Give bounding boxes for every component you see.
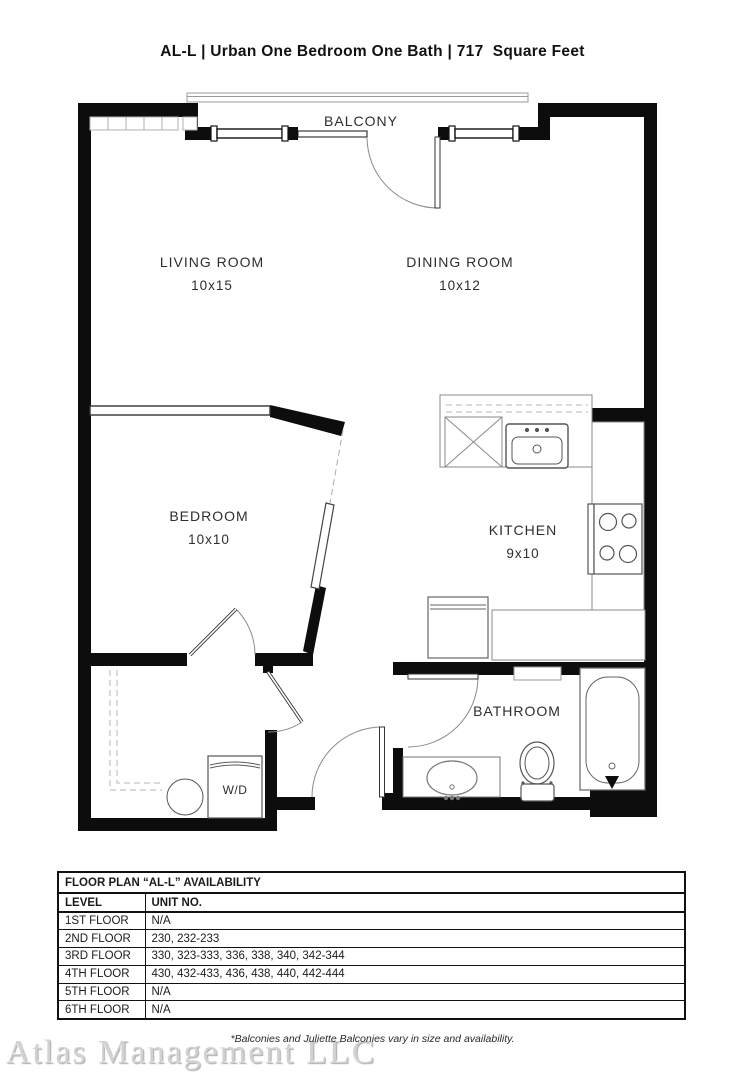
bedroom-door bbox=[190, 609, 255, 655]
room-label-bathroom: BATHROOM bbox=[473, 703, 561, 719]
level-cell: 1ST FLOOR bbox=[58, 912, 145, 930]
room-label-laundry: W/D bbox=[223, 783, 248, 797]
level-cell: 6TH FLOOR bbox=[58, 1001, 145, 1019]
room-dims-bedroom: 10x10 bbox=[188, 532, 230, 547]
sliding-door-panel bbox=[311, 503, 334, 589]
table-row: 3RD FLOOR 330, 323-333, 336, 338, 340, 3… bbox=[58, 948, 685, 966]
room-label-balcony: BALCONY bbox=[324, 113, 398, 129]
table-row: 4TH FLOOR 430, 432-433, 436, 438, 440, 4… bbox=[58, 965, 685, 983]
toilet bbox=[520, 742, 554, 801]
closet-door bbox=[268, 672, 302, 732]
kitchen-counter-bottom bbox=[492, 610, 645, 660]
closet-rod bbox=[110, 670, 162, 790]
units-cell: N/A bbox=[145, 1001, 685, 1019]
entry-door bbox=[312, 727, 385, 797]
room-label-kitchen: KITCHEN bbox=[489, 522, 557, 538]
vanity-sink bbox=[403, 757, 500, 800]
bedroom-partition bbox=[90, 406, 343, 589]
bathroom-fixtures bbox=[403, 667, 645, 801]
units-cell: N/A bbox=[145, 912, 685, 930]
units-cell: N/A bbox=[145, 983, 685, 1001]
units-cell: 230, 232-233 bbox=[145, 930, 685, 948]
baseboard-heater bbox=[90, 117, 197, 130]
level-cell: 5TH FLOOR bbox=[58, 983, 145, 1001]
level-cell: 3RD FLOOR bbox=[58, 948, 145, 966]
room-dims-kitchen: 9x10 bbox=[506, 546, 539, 561]
stove bbox=[588, 504, 642, 574]
availability-table: FLOOR PLAN “AL-L” AVAILABILITY LEVEL UNI… bbox=[57, 871, 686, 1020]
bath-niche bbox=[514, 667, 561, 680]
balcony-railing bbox=[187, 93, 528, 102]
table-row: 6TH FLOOR N/A bbox=[58, 1001, 685, 1019]
units-cell: 430, 432-433, 436, 438, 440, 442-444 bbox=[145, 965, 685, 983]
room-label-dining: DINING ROOM bbox=[406, 254, 513, 270]
table-row: 1ST FLOOR N/A bbox=[58, 912, 685, 930]
kitchen-sink bbox=[506, 424, 568, 468]
floorplan-page: AL-L | Urban One Bedroom One Bath | 717 … bbox=[0, 0, 745, 1080]
floorplan-drawing: BALCONY LIVING ROOM 10x15 DINING ROOM 10… bbox=[0, 0, 745, 860]
table-row: 5TH FLOOR N/A bbox=[58, 983, 685, 1001]
availability-table-title: FLOOR PLAN “AL-L” AVAILABILITY bbox=[58, 872, 685, 893]
balcony-door bbox=[367, 137, 440, 208]
room-label-living: LIVING ROOM bbox=[160, 254, 264, 270]
level-cell: 2ND FLOOR bbox=[58, 930, 145, 948]
bathroom-door bbox=[408, 674, 478, 747]
level-cell: 4TH FLOOR bbox=[58, 965, 145, 983]
column-header-unit-no: UNIT NO. bbox=[145, 893, 685, 912]
refrigerator bbox=[428, 597, 488, 658]
room-dims-dining: 10x12 bbox=[439, 278, 481, 293]
footnote: *Balconies and Juliette Balconies vary i… bbox=[230, 1033, 514, 1045]
room-label-bedroom: BEDROOM bbox=[169, 508, 248, 524]
bathtub bbox=[580, 668, 645, 790]
table-row: 2ND FLOOR 230, 232-233 bbox=[58, 930, 685, 948]
water-heater bbox=[167, 779, 203, 815]
room-dims-living: 10x15 bbox=[191, 278, 233, 293]
column-header-level: LEVEL bbox=[58, 893, 145, 912]
units-cell: 330, 323-333, 336, 338, 340, 342-344 bbox=[145, 948, 685, 966]
